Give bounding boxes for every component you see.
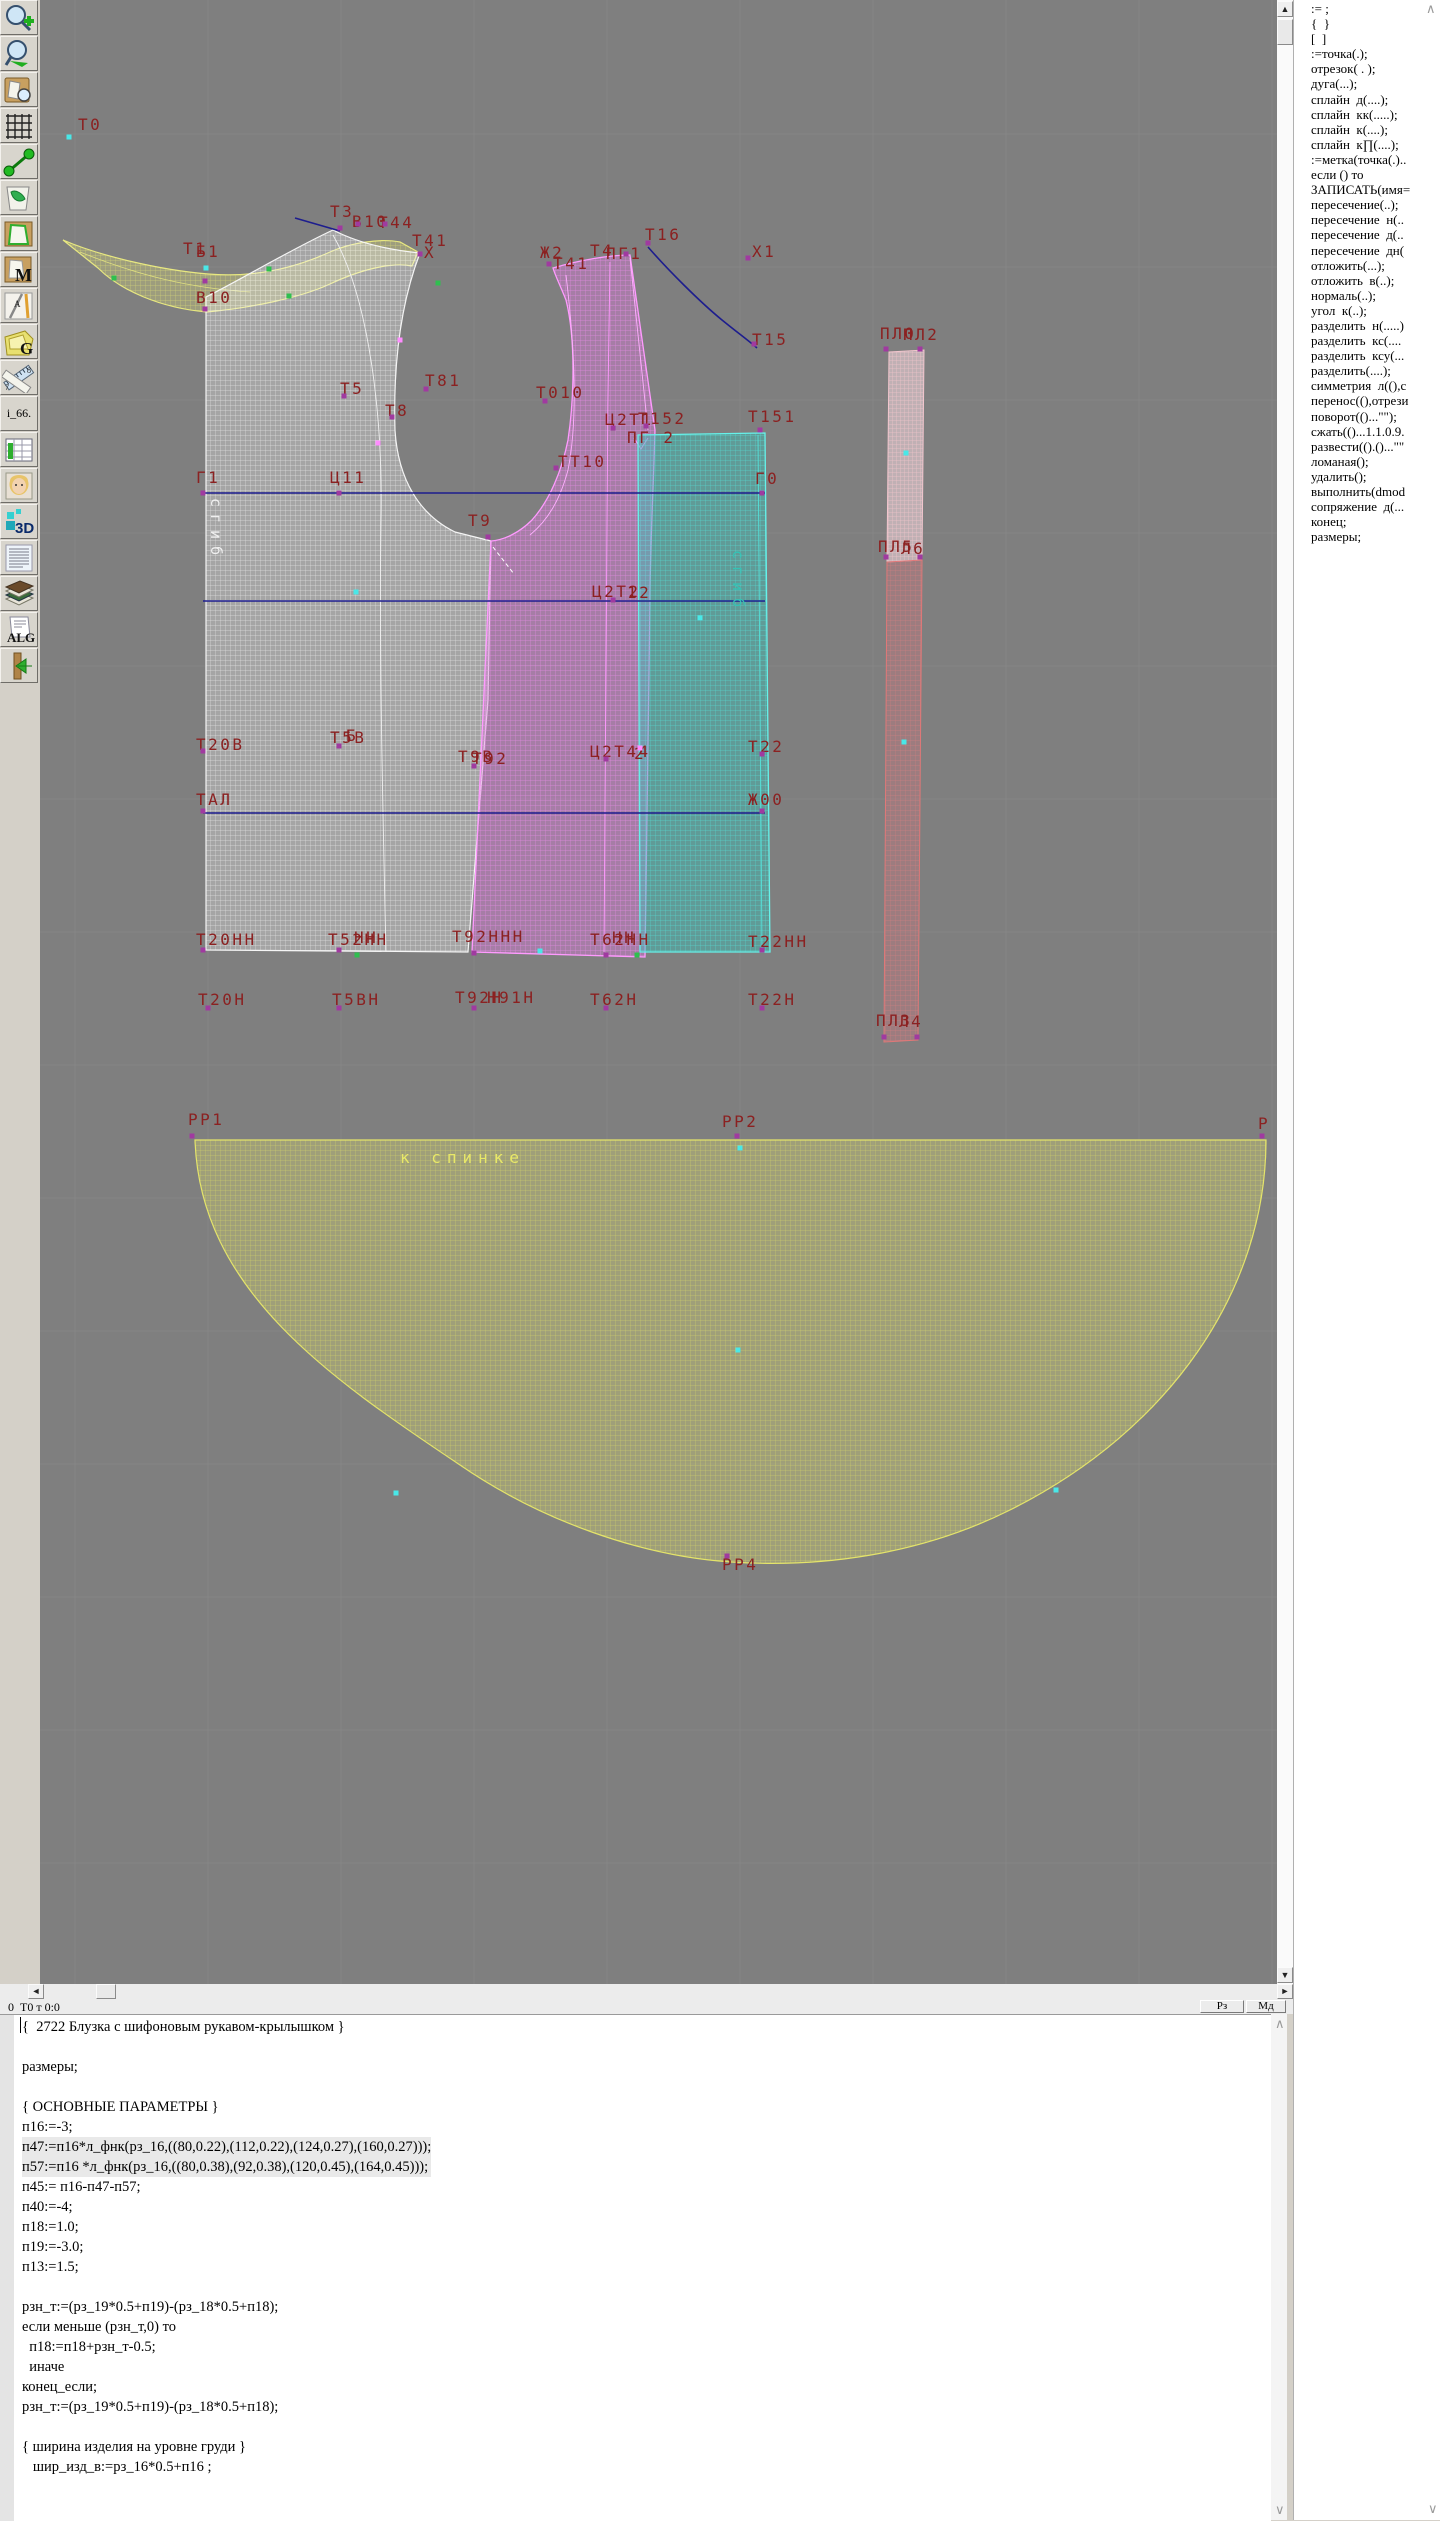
ruler-icon: 78 [2,363,36,393]
pattern-canvas[interactable]: сгиб сгиб к спинке Т0Т3В10Т44Т1Б1Т41ХВ10… [40,0,1277,1984]
panel-scroll-down-icon[interactable]: ∨ [1428,2502,1438,2517]
canvas-scroll-left-button[interactable]: ◄ [28,1984,44,1999]
canvas-label: Ц11 [330,468,366,487]
editor-line[interactable]: рзн_т:=(рз_19*0.5+п19)-(рз_18*0.5+п18); [22,2397,431,2417]
command-list-item[interactable]: [ ] [1311,31,1410,46]
pattern-point-purple[interactable] [472,764,477,769]
pattern-point-pink[interactable] [638,746,643,751]
sketch-map-icon [2,183,36,213]
canvas-hscroll-thumb[interactable] [96,1984,116,1999]
svg-text:G: G [20,339,33,357]
pattern-point-purple[interactable] [918,555,923,560]
canvas-label: Р [1258,1114,1270,1133]
pattern-point-purple[interactable] [644,424,649,429]
pattern-point-purple[interactable] [356,222,361,227]
command-panel: := ;{ }[ ]:=точка(.);отрезок( . );дуга(.… [1293,0,1440,2520]
algorithm-icon: ALG [2,615,36,645]
canvas-label: Т81 [425,371,461,390]
pattern-point-purple[interactable] [390,415,395,420]
pattern-point-cyan[interactable] [394,1491,399,1496]
canvas-label: Н91Н [487,988,536,1007]
svg-text:ALG: ALG [7,630,35,645]
pattern-point-cyan[interactable] [736,1348,741,1353]
pattern-point-purple[interactable] [884,347,889,352]
pattern-point-purple[interactable] [486,535,491,540]
command-list-item[interactable]: пересечение(..); [1311,197,1410,212]
toolbar-button-zoom-out[interactable] [0,36,38,71]
svg-text:8: 8 [27,366,31,375]
command-list-item[interactable]: сопряжение д(... [1311,499,1410,514]
canvas-label: Х1 [752,242,776,261]
toolbar-button-text-list[interactable] [0,540,38,575]
command-list-item[interactable]: разделить ксу(... [1311,348,1410,363]
i66-label: i_66. [7,406,31,421]
canvas-label: Т0 [78,115,102,134]
pattern-point-purple[interactable] [337,1006,342,1011]
command-list-item[interactable]: отрезок( . ); [1311,61,1410,76]
pattern-point-purple[interactable] [554,466,559,471]
toolbar-button-fit-view[interactable] [0,72,38,107]
pattern-point-purple[interactable] [760,752,765,757]
status-bar: 0 Т0 т 0:0 Рз Мд [0,2000,1293,2014]
command-list-item[interactable]: отложить в(..); [1311,273,1410,288]
toolbar-button-reference-books[interactable] [0,576,38,611]
canvas-label: Т92 [472,749,508,768]
canvas-label: В10 [196,288,232,307]
editor-line[interactable] [22,2277,431,2297]
drafting-tools-icon: А [2,291,36,321]
editor-line[interactable]: п19:=-3.0; [22,2237,431,2257]
fold-text-side: сгиб [729,550,747,614]
pattern-point-purple[interactable] [884,555,889,560]
editor-line[interactable] [22,2077,431,2097]
pattern-point-cyan[interactable] [698,616,703,621]
toolbar-button-grid[interactable] [0,108,38,143]
editor-line[interactable]: если меньше (рзн_т,0) то [22,2317,431,2337]
canvas-label: РР1 [188,1110,224,1129]
command-list-item[interactable]: конец; [1311,514,1410,529]
svg-text:M: M [15,265,32,285]
pattern-point-pink[interactable] [376,441,381,446]
editor-line[interactable]: п45:= п16-п47-п57; [22,2177,431,2197]
editor-line[interactable]: п40:=-4; [22,2197,431,2217]
canvas-label: Т3 [330,202,354,221]
pattern-point-cyan[interactable] [354,590,359,595]
pattern-point-pink[interactable] [398,338,403,343]
pattern-point-cyan[interactable] [902,740,907,745]
editor-line[interactable]: { ОСНОВНЫЕ ПАРАМЕТРЫ } [22,2097,431,2117]
command-list-item[interactable]: симметрия л((),с [1311,378,1410,393]
pattern-point-purple[interactable] [383,222,388,227]
canvas-label: ТТ10 [558,452,607,471]
editor-line[interactable]: п18:=п18+рзн_т-0.5; [22,2337,431,2357]
fold-text-back: сгиб [207,498,225,562]
command-list-item[interactable]: ломаная(); [1311,454,1410,469]
canvas-hscrollbar[interactable]: ◄ ► [0,1984,1293,2000]
pattern-point-purple[interactable] [1260,1134,1265,1139]
canvas-scroll-down-button[interactable]: ▼ [1277,1967,1293,1983]
pattern-point-purple[interactable] [735,1134,740,1139]
command-list-item[interactable]: нормаль(..); [1311,288,1410,303]
pattern-point-purple[interactable] [337,948,342,953]
pattern-point-purple[interactable] [760,948,765,953]
pattern-point-purple[interactable] [646,241,651,246]
fit-view-icon [2,75,36,105]
toolbar-button-size-table[interactable] [0,432,38,467]
app-window: { "toolbar": { "buttons": [ {"name":"zoo… [0,0,1440,2520]
toolbar-button-piece-m[interactable]: M [0,252,38,287]
canvas-label: Ж00 [748,790,784,809]
toolbar-button-zoom-in[interactable] [0,0,38,35]
piece-back[interactable] [206,230,491,952]
command-list-item[interactable]: := ; [1311,1,1410,16]
command-list-item[interactable]: :=точка(.); [1311,46,1410,61]
pattern-point-purple[interactable] [201,809,206,814]
canvas-label: НН [354,928,378,947]
pattern-point-purple[interactable] [201,491,206,496]
canvas-label: Б [346,726,358,745]
toolbar-button-piece-g[interactable]: G [0,324,38,359]
canvas-label: Т92ННН [452,927,525,946]
pattern-point-purple[interactable] [472,951,477,956]
pattern-point-cyan[interactable] [1054,1488,1059,1493]
rz-button[interactable]: Рз [1200,2000,1244,2013]
canvas-label: 12 [627,583,651,602]
editor-line[interactable]: { 2722 Блузка с шифоновым рукавом-крылыш… [22,2017,431,2037]
canvas-label: Т15 [752,330,788,349]
grid-icon [2,111,36,141]
editor-text[interactable]: { 2722 Блузка с шифоновым рукавом-крылыш… [22,2017,431,2477]
pattern-point-purple[interactable] [725,1554,730,1559]
command-list-item[interactable]: сплайн к(....); [1311,122,1410,137]
canvas-label: Х [424,243,436,262]
pattern-point-green[interactable] [267,267,272,272]
pattern-point-purple[interactable] [543,399,548,404]
canvas-label: Т151 [748,407,797,426]
canvas-label: ПГ 2 [627,428,676,447]
pattern-point-purple[interactable] [746,256,751,261]
piece-front[interactable] [472,255,655,957]
editor-line[interactable]: п16:=-3; [22,2117,431,2137]
canvas-scroll-right-button[interactable]: ► [1277,1984,1293,1999]
toolbar-button-ruler[interactable]: 78 [0,360,38,395]
canvas-label: Т22НН [748,932,809,951]
pattern-point-purple[interactable] [338,226,343,231]
canvas-label: Т8 [385,401,409,420]
pattern-point-purple[interactable] [203,307,208,312]
size-table-icon [2,435,36,465]
pattern-point-purple[interactable] [604,757,609,762]
canvas-label: ПЛ2 [903,325,939,344]
pattern-point-purple[interactable] [424,387,429,392]
pattern-point-purple[interactable] [337,491,342,496]
pattern-point-purple[interactable] [760,809,765,814]
piece-strip-lower[interactable] [884,560,922,1042]
toolbar-button-i66-button[interactable]: i_66. [0,396,38,431]
measure-curve-icon [2,147,36,177]
piece-m-icon: M [2,255,36,285]
pattern-point-purple[interactable] [760,491,765,496]
editor-gutter [0,2015,14,2521]
command-list-item[interactable]: :=метка(точка(.).. [1311,152,1410,167]
command-list-item[interactable]: отложить(...); [1311,258,1410,273]
editor-line[interactable]: размеры; [22,2057,431,2077]
canvas-label: ТАЛ [196,790,232,809]
canvas-label: Т20НН [196,930,257,949]
canvas-label: Т22Н [748,990,797,1009]
toolbar-button-piece-outline[interactable] [0,216,38,251]
command-list: := ;{ }[ ]:=точка(.);отрезок( . );дуга(.… [1311,1,1410,544]
command-list-item[interactable]: сплайн д(....); [1311,92,1410,107]
pattern-point-purple[interactable] [604,953,609,958]
command-list-item[interactable]: сплайн к∏(....); [1311,137,1410,152]
command-list-item[interactable]: если () то [1311,167,1410,182]
panel-scroll-up-icon[interactable]: ∧ [1426,2,1436,17]
editor-line[interactable]: п57:=п16 *л_фнк(рз_16,((80,0.38),(92,0.3… [22,2157,431,2177]
text-list-icon [2,543,36,573]
pattern-point-purple[interactable] [760,1006,765,1011]
editor-line[interactable]: { ширина изделия на уровне груди } [22,2437,431,2457]
command-list-item[interactable]: пересечение н(.. [1311,212,1410,227]
pattern-point-green[interactable] [355,953,360,958]
canvas-label: НН [612,928,636,947]
pattern-point-purple[interactable] [758,428,763,433]
editor-line[interactable]: п47:=п16*л_фнк(рз_16,((80,0.22),(112,0.2… [22,2137,431,2157]
pattern-point-green[interactable] [112,276,117,281]
canvas-label: Б1 [196,242,220,261]
editor-line[interactable]: п18:=1.0; [22,2217,431,2237]
pattern-point-purple[interactable] [203,279,208,284]
command-list-item[interactable]: сжать(()...1.1.0.9. [1311,424,1410,439]
editor-line[interactable] [22,2417,431,2437]
pattern-point-purple[interactable] [206,1006,211,1011]
svg-text:3D: 3D [15,520,34,537]
piece-side[interactable] [638,433,770,952]
canvas-vscrollbar[interactable]: ▲ ▼ [1277,0,1293,1984]
editor-line[interactable]: шир_изд_в:=рз_16*0.5+п16 ; [22,2457,431,2477]
command-list-item[interactable]: разделить н(.....) [1311,318,1410,333]
editor-line[interactable]: конец_если; [22,2377,431,2397]
editor-line[interactable]: рзн_т:=(рз_19*0.5+п19)-(рз_18*0.5+п18); [22,2297,431,2317]
pattern-point-cyan[interactable] [67,135,72,140]
pattern-point-purple[interactable] [604,1006,609,1011]
editor-line[interactable] [22,2037,431,2057]
pattern-point-purple[interactable] [752,342,757,347]
toolbar-button-measure-curve[interactable] [0,144,38,179]
tool-palette: MАG78i_66.3DALG [0,0,40,684]
canvas-label: Г0 [755,469,779,488]
editor-line[interactable]: п13:=1.5; [22,2257,431,2277]
canvas-label: Л4 [899,1012,923,1031]
pattern-point-purple[interactable] [201,749,206,754]
command-list-item[interactable]: угол к(..); [1311,303,1410,318]
canvas-label: Т20Н [198,990,247,1009]
command-list-item[interactable]: { } [1311,16,1410,31]
pattern-point-purple[interactable] [915,1035,920,1040]
exit-icon [2,651,36,681]
canvas-label: Г1 [196,468,220,487]
pattern-point-cyan[interactable] [538,949,543,954]
command-list-item[interactable]: разделить(....); [1311,363,1410,378]
canvas-label: Т22 [748,737,784,756]
pattern-point-purple[interactable] [547,262,552,267]
command-list-item[interactable]: перенос((),отрези [1311,393,1410,408]
zoom-out-icon [2,39,36,69]
toolbar-button-view-3d[interactable]: 3D [0,504,38,539]
model-photo-icon [2,471,36,501]
piece-strip-upper[interactable] [887,350,924,562]
toolbar-button-sketch-map[interactable] [0,180,38,215]
canvas-vscroll-thumb[interactable] [1277,19,1293,45]
command-list-item[interactable]: сплайн кк(.....); [1311,107,1410,122]
text-cursor [20,2017,21,2033]
command-list-item[interactable]: ЗАПИСАТЬ(имя= [1311,182,1410,197]
pattern-point-green[interactable] [287,294,292,299]
toolbar-button-exit[interactable] [0,648,38,683]
reference-books-icon [2,579,36,609]
editor-scroll-up-icon[interactable]: ∧ [1275,2017,1285,2032]
pattern-point-purple[interactable] [472,1006,477,1011]
canvas-label: Т9 [468,511,492,530]
command-list-item[interactable]: разделить кс(.... [1311,333,1410,348]
pattern-point-purple[interactable] [918,347,923,352]
canvas-label: Т41 [553,254,589,273]
pattern-point-cyan[interactable] [738,1146,743,1151]
pattern-point-purple[interactable] [611,426,616,431]
pattern-point-purple[interactable] [882,1035,887,1040]
pattern-point-purple[interactable] [201,948,206,953]
command-list-item[interactable]: поворот(()...""); [1311,409,1410,424]
pattern-point-purple[interactable] [611,598,616,603]
pattern-point-cyan[interactable] [204,266,209,271]
command-list-item[interactable]: выполнить(dmod [1311,484,1410,499]
command-list-item[interactable]: размеры; [1311,529,1410,544]
command-list-item[interactable]: развести(().()..."" [1311,439,1410,454]
editor-scroll-down-icon[interactable]: ∨ [1275,2503,1285,2518]
zoom-in-icon [2,3,36,33]
svg-text:А: А [14,299,21,309]
pattern-point-purple[interactable] [190,1134,195,1139]
pattern-point-cyan[interactable] [904,451,909,456]
editor-line[interactable]: иначе [22,2357,431,2377]
pattern-point-green[interactable] [635,953,640,958]
toolbar-button-model-photo[interactable] [0,468,38,503]
cursor-position-text: 0 Т0 т 0:0 [8,2000,60,2015]
piece-outline-icon [2,219,36,249]
canvas-label: Т62Н [590,990,639,1009]
pattern-point-purple[interactable] [342,394,347,399]
pattern-point-green[interactable] [436,281,441,286]
toolbar-button-drafting-tools[interactable]: А [0,288,38,323]
command-list-item[interactable]: пересечение д(.. [1311,227,1410,242]
command-list-item[interactable]: удалить(); [1311,469,1410,484]
canvas-label: РР2 [722,1112,758,1131]
svg-text:7: 7 [5,383,9,392]
pattern-point-purple[interactable] [418,252,423,257]
command-list-item[interactable]: дуга(...); [1311,76,1410,91]
piece-skirt[interactable] [195,1140,1266,1563]
view-3d-icon: 3D [2,507,36,537]
pattern-point-purple[interactable] [624,252,629,257]
to-back-text: к спинке [400,1148,525,1167]
toolbar-button-algorithm[interactable]: ALG [0,612,38,647]
canvas-scroll-up-button[interactable]: ▲ [1277,1,1293,17]
piece-g-icon: G [2,327,36,357]
md-button[interactable]: Мд [1246,2000,1286,2013]
program-editor[interactable]: { 2722 Блузка с шифоновым рукавом-крылыш… [0,2014,1271,2521]
editor-vscrollbar[interactable]: ∧ ∨ [1271,2014,1287,2520]
command-list-item[interactable]: пересечение дн( [1311,243,1410,258]
pattern-point-purple[interactable] [337,744,342,749]
